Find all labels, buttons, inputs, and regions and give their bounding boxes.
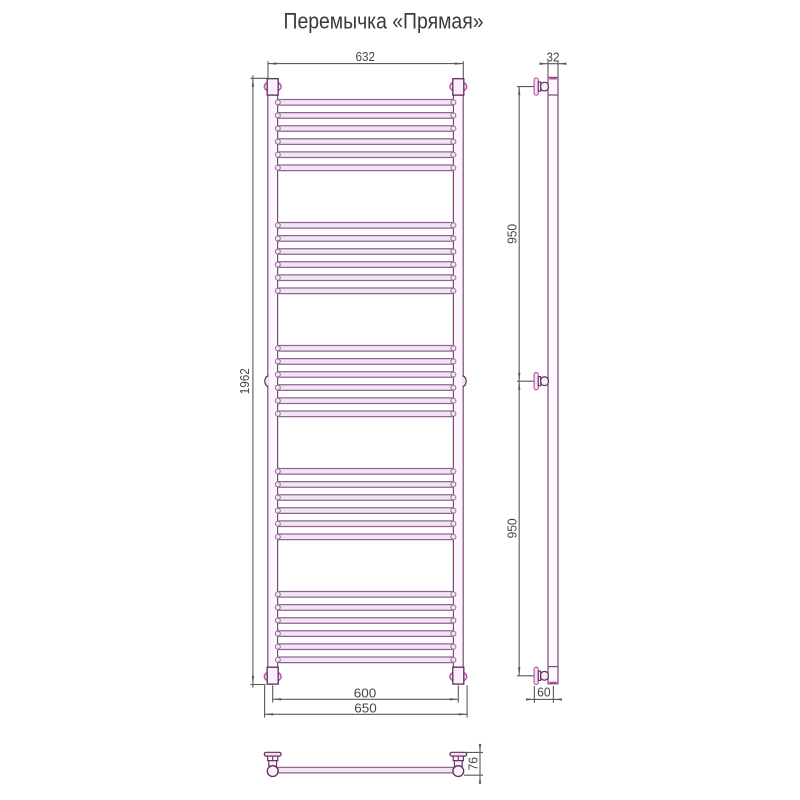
svg-text:60: 60 [537, 684, 551, 699]
svg-text:600: 600 [354, 685, 377, 700]
svg-text:32: 32 [547, 49, 560, 64]
svg-text:950: 950 [505, 518, 520, 538]
svg-text:1962: 1962 [237, 368, 252, 394]
svg-text:950: 950 [505, 224, 520, 244]
svg-text:Перемычка «Прямая»: Перемычка «Прямая» [284, 9, 484, 34]
svg-text:76: 76 [465, 757, 480, 771]
svg-text:650: 650 [354, 700, 377, 715]
svg-text:632: 632 [356, 49, 376, 64]
